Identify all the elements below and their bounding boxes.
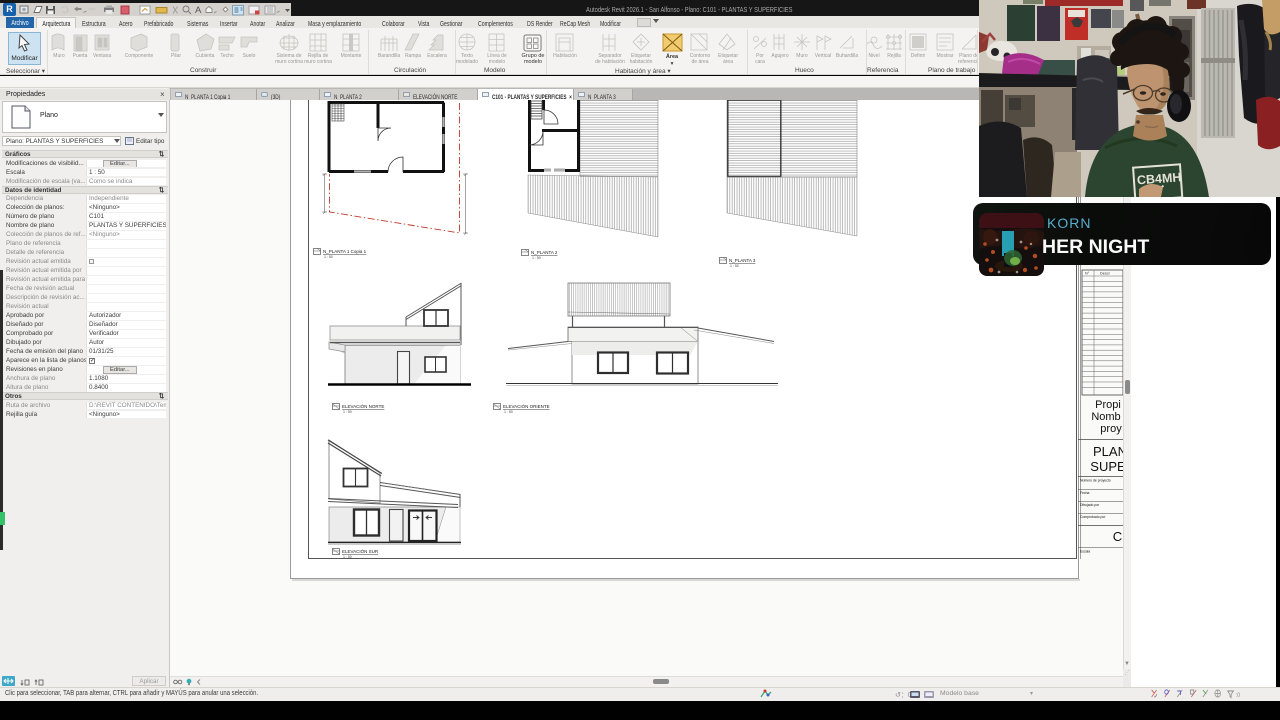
svg-text:N°: N° [1085,272,1090,276]
svg-text:Cubierta: Cubierta [196,53,215,59]
svg-text:1 : 50: 1 : 50 [532,256,541,260]
svg-text:muro cortina: muro cortina [304,59,332,65]
svg-text:de habitación: de habitación [595,59,625,65]
svg-text:Descr: Descr [1100,272,1111,276]
svg-text:Dibujado por: Dibujado por [1080,503,1100,507]
svg-text:modelo: modelo [489,59,506,65]
svg-text:Barandilla: Barandilla [378,53,400,59]
svg-text:área: área [723,59,733,65]
svg-text:Rejilla: Rejilla [887,53,901,59]
svg-text:1 : 50: 1 : 50 [504,410,513,414]
svg-text:Propi: Propi [1095,399,1121,411]
svg-text:Pilar: Pilar [171,53,181,59]
svg-text:Comprobado por: Comprobado por [1080,515,1106,519]
svg-text:Habitación: Habitación [553,53,577,59]
svg-text:Puerta: Puerta [73,53,88,59]
svg-text:Número de proyecto: Número de proyecto [1080,479,1111,483]
svg-text:Mostrar: Mostrar [937,53,954,59]
svg-text:modelo: modelo [524,59,542,65]
svg-text:Rampa: Rampa [405,53,421,59]
svg-text:Ventana: Ventana [93,53,112,59]
svg-text:N_PLANTA 2: N_PLANTA 2 [531,250,558,255]
svg-text:referencia: referencia [958,59,978,65]
svg-text:Agujero: Agujero [771,53,788,59]
svg-text:habitación: habitación [630,59,653,65]
svg-text:Escala: Escala [1080,550,1090,554]
svg-text:PLAN: PLAN [1093,444,1123,459]
svg-text:Montante: Montante [341,53,362,59]
svg-text:modelado: modelado [456,59,478,65]
svg-text:SUPE: SUPE [1090,459,1123,474]
svg-text:N_PLANTA 3: N_PLANTA 3 [729,258,756,263]
svg-text:A: A [195,5,202,16]
svg-text:ELEVACIÓN ORIENTE: ELEVACIÓN ORIENTE [503,403,550,409]
svg-text:ELEVACIÓN SUR: ELEVACIÓN SUR [342,548,379,554]
svg-text:Nomb: Nomb [1091,411,1120,423]
svg-text:Componente: Componente [125,53,154,59]
svg-text:C1: C1 [1113,529,1123,544]
svg-text:muro cortina: muro cortina [275,59,303,65]
svg-text:Escalera: Escalera [427,53,447,59]
svg-text:Definir: Definir [911,53,926,59]
svg-text:1 : 50: 1 : 50 [343,410,352,414]
svg-text:Muro: Muro [796,53,808,59]
svg-text:1 : 50: 1 : 50 [324,255,333,259]
svg-text:Buhardilla: Buhardilla [836,53,858,59]
svg-text:Fecha: Fecha [1080,491,1090,495]
svg-text:1 : 50: 1 : 50 [730,264,739,268]
svg-text:N_PLANTA 1 Copia 1: N_PLANTA 1 Copia 1 [323,249,367,254]
svg-text:Área: Área [666,53,679,60]
svg-text:ELEVACIÓN NORTE: ELEVACIÓN NORTE [342,403,384,409]
svg-text:Vertical: Vertical [815,53,831,59]
svg-text:1 : 50: 1 : 50 [343,555,352,559]
svg-text:Muro: Muro [53,53,65,59]
svg-text:de área: de área [692,59,709,65]
svg-text:cara: cara [755,59,765,65]
svg-text::0: :0 [1236,693,1240,700]
svg-text:Suelo: Suelo [243,53,256,59]
svg-text:proy: proy [1100,423,1122,435]
svg-text:Nivel: Nivel [868,53,879,59]
svg-text:Techo: Techo [220,53,234,59]
